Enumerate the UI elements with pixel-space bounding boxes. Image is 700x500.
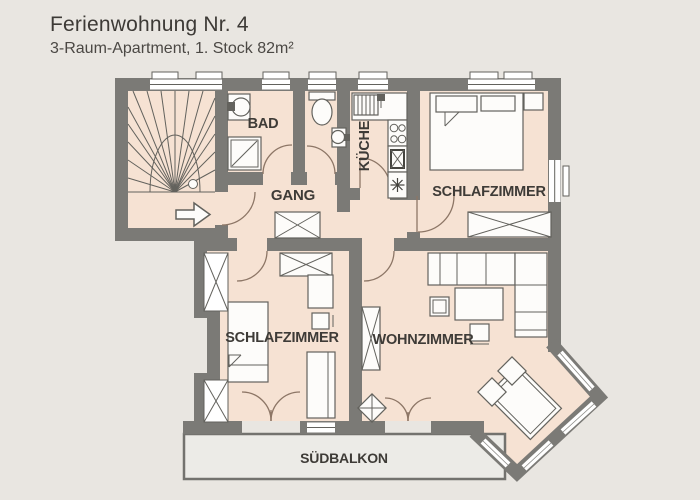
label-schlafzimmer-bottom: SCHLAFZIMMER [225, 330, 339, 346]
fridge-icon [388, 172, 407, 198]
coffee-table-icon [455, 288, 503, 320]
wardrobe-icon [468, 212, 551, 237]
label-bad: BAD [248, 116, 279, 132]
nightstand-icon [524, 93, 543, 110]
stove-icon [388, 120, 407, 146]
double-bed-icon [430, 93, 523, 170]
tall-cabinet-icon [307, 352, 335, 418]
label-suedbalkon: SÜDBALKON [300, 450, 388, 466]
armchair-icon [430, 297, 449, 316]
desk-icon [308, 275, 333, 308]
label-gang: GANG [271, 187, 315, 204]
shower-icon [228, 137, 261, 170]
closet-icon [280, 253, 332, 276]
label-kueche: KÜCHE [356, 120, 373, 171]
label-schlafzimmer-top: SCHLAFZIMMER [432, 184, 546, 200]
floor-plan: BAD GANG KÜCHE SCHLAFZIMMER SCHLAFZIMMER… [0, 0, 700, 500]
chair-icon [312, 313, 329, 329]
oven-icon [388, 146, 407, 172]
hallway-wardrobe-icon [275, 212, 320, 238]
label-wohnzimmer: WOHNZIMMER [372, 332, 474, 348]
